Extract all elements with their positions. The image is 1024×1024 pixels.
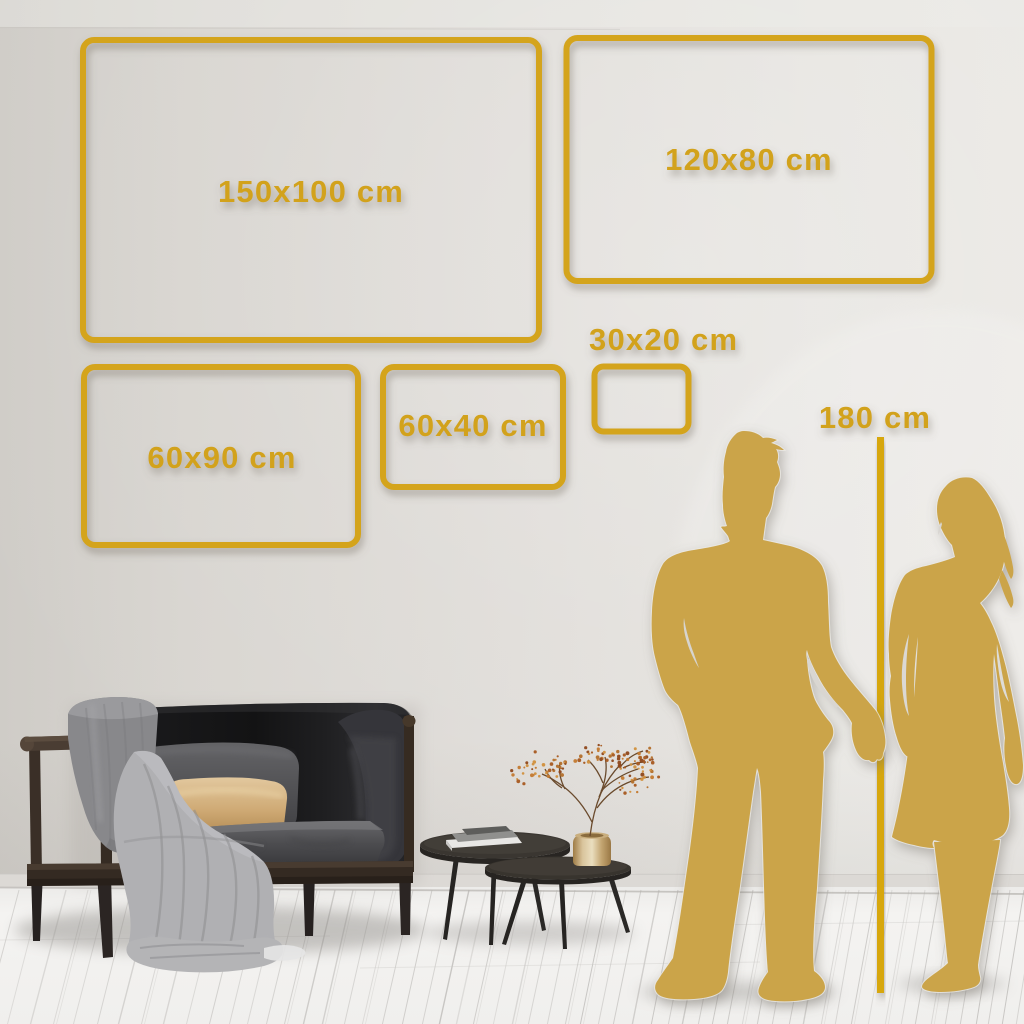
svg-text:60x90 cm: 60x90 cm [147, 440, 296, 475]
svg-text:120x80 cm: 120x80 cm [665, 142, 833, 177]
svg-text:60x40 cm: 60x40 cm [398, 408, 547, 443]
svg-text:30x20 cm: 30x20 cm [589, 322, 738, 357]
svg-text:150x100 cm: 150x100 cm [218, 174, 404, 209]
svg-text:180 cm: 180 cm [819, 400, 931, 435]
